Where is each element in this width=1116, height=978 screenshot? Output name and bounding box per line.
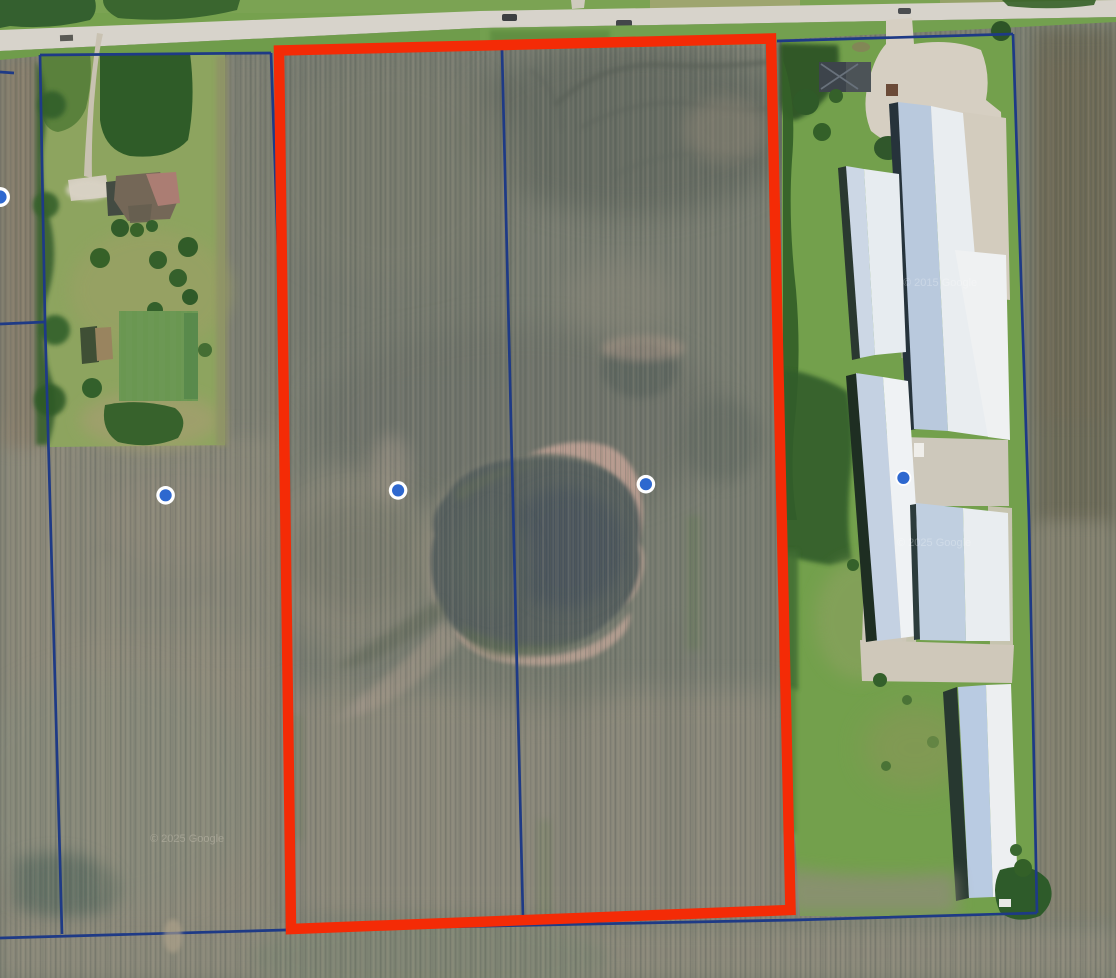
svg-text:© 2015 Google: © 2015 Google [903,277,977,289]
svg-text:© 2025 Google: © 2025 Google [150,833,224,845]
svg-text:© 2025 Google: © 2025 Google [897,537,971,549]
